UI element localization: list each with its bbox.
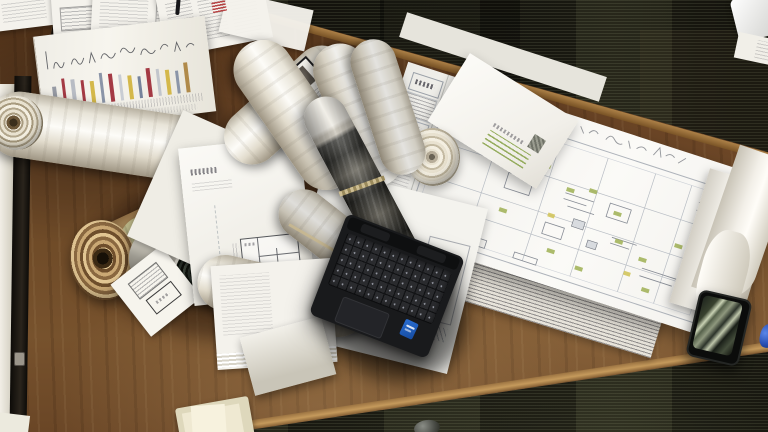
sheet-logo-mark: [190, 167, 216, 176]
bottom-left-paper: [0, 412, 30, 432]
gantt-stripe: [118, 74, 125, 100]
envelope-stamp: [527, 134, 546, 154]
gantt-stripe: [98, 73, 105, 103]
left-roll-spiral: [0, 92, 47, 153]
gantt-stripe: [145, 68, 152, 97]
gantt-stripe: [108, 74, 115, 102]
gantt-stripe: [174, 70, 180, 93]
intel-sticker: [399, 319, 419, 340]
gantt-stripe: [165, 70, 172, 95]
gantt-stripe: [137, 76, 143, 98]
twine-tie: [338, 175, 385, 196]
gantt-stripe: [183, 62, 190, 92]
cabinet-hinge: [14, 352, 25, 366]
phone-screen[interactable]: [692, 295, 743, 357]
gantt-stripe: [90, 81, 96, 104]
gantt-stripe: [127, 75, 133, 99]
gantt-stripe: [155, 69, 162, 96]
photo-architect-desk: [0, 0, 768, 432]
